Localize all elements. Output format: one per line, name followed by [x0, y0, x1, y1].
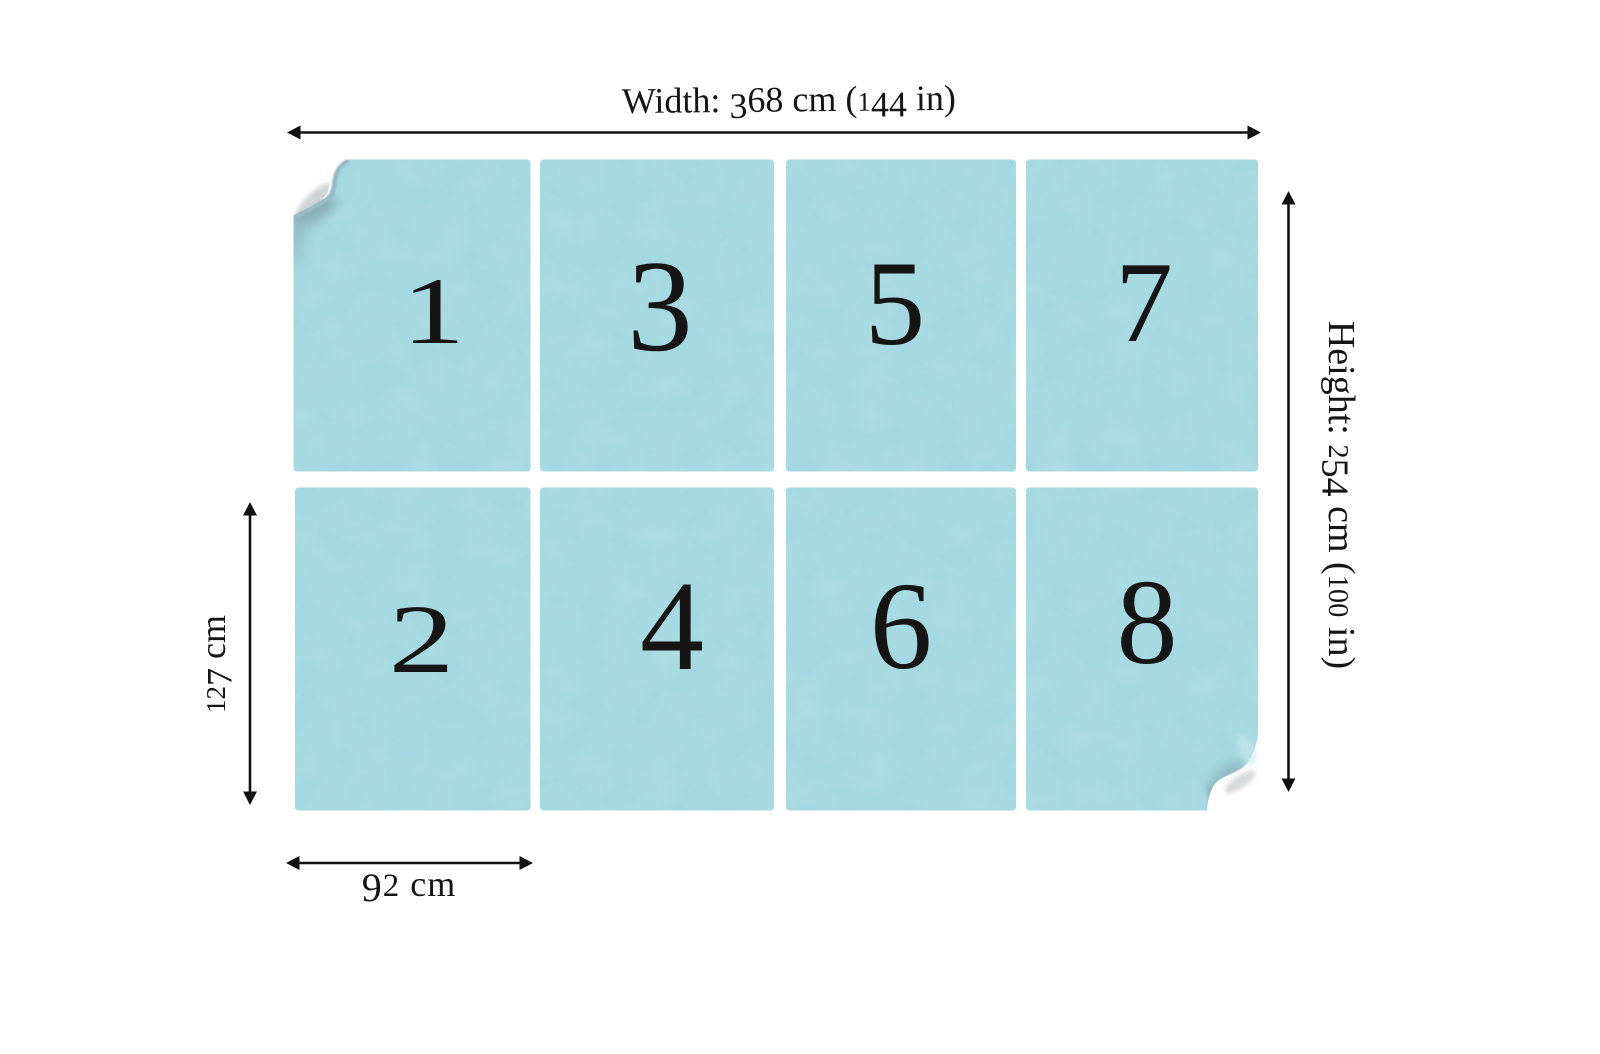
svg-text:1: 1 — [402, 259, 465, 364]
svg-text:7: 7 — [1115, 239, 1173, 366]
svg-text:8: 8 — [1117, 555, 1178, 690]
svg-text:5: 5 — [865, 237, 926, 371]
svg-text:4: 4 — [640, 555, 704, 697]
svg-text:3: 3 — [627, 234, 693, 379]
svg-text:Height: 254 cm (100 in): Height: 254 cm (100 in) — [1314, 321, 1363, 669]
svg-text:6: 6 — [870, 558, 933, 696]
svg-text:2: 2 — [389, 586, 455, 694]
svg-text:92 cm: 92 cm — [362, 864, 456, 910]
